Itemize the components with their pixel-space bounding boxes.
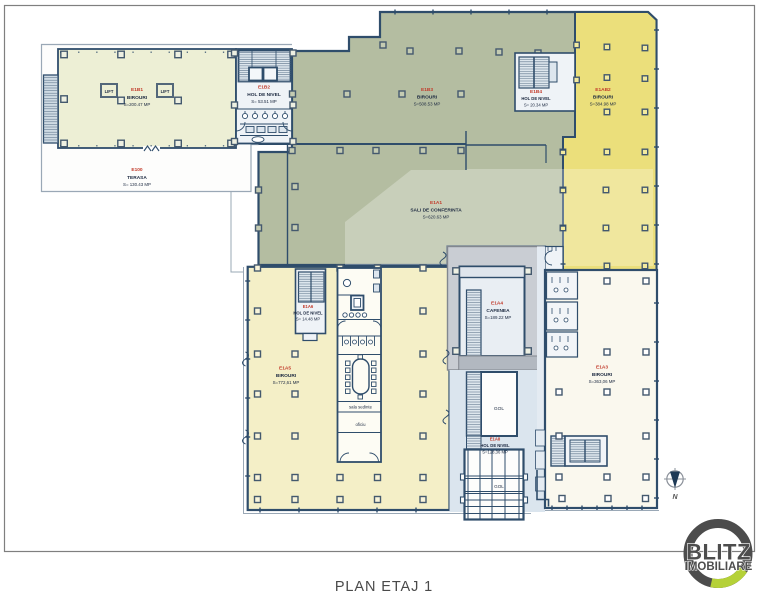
svg-text:GOL: GOL <box>494 484 504 489</box>
svg-text:S=772,61 MP: S=772,61 MP <box>273 380 300 385</box>
svg-text:SALI DE CONFERINTA: SALI DE CONFERINTA <box>410 208 462 214</box>
svg-text:E1A8: E1A8 <box>490 437 501 442</box>
svg-text:GOL: GOL <box>494 406 504 412</box>
svg-text:E1A1: E1A1 <box>430 200 442 206</box>
svg-text:PLAN ETAJ 1: PLAN ETAJ 1 <box>335 579 433 595</box>
svg-text:TERASA: TERASA <box>127 175 147 181</box>
svg-text:S=189.22 MP: S=189.22 MP <box>485 315 512 320</box>
svg-text:S=508.53 MP: S=508.53 MP <box>414 102 441 107</box>
svg-text:S= 53.51 MP: S= 53.51 MP <box>251 99 277 104</box>
svg-text:E1A4: E1A4 <box>491 301 503 307</box>
svg-text:S= 20.34 MP: S= 20.34 MP <box>524 103 549 108</box>
svg-text:HOL DE NIVEL: HOL DE NIVEL <box>521 96 551 101</box>
svg-text:LIFT: LIFT <box>105 89 114 94</box>
svg-text:E1B4: E1B4 <box>530 89 542 95</box>
svg-text:LIFT: LIFT <box>161 89 170 94</box>
svg-text:CAFENEA: CAFENEA <box>486 308 510 314</box>
svg-text:HOL DE NIVEL: HOL DE NIVEL <box>293 311 323 316</box>
svg-text:S=384.98 MP: S=384.98 MP <box>590 102 617 107</box>
svg-text:oficiu: oficiu <box>355 422 366 427</box>
svg-text:S=200.47 MP: S=200.47 MP <box>124 102 151 107</box>
svg-text:BIROURI: BIROURI <box>593 95 614 101</box>
svg-text:E100: E100 <box>131 167 143 173</box>
svg-text:E1A6: E1A6 <box>303 304 314 309</box>
svg-text:E1B2: E1B2 <box>258 85 270 91</box>
svg-text:E1AB2: E1AB2 <box>595 87 611 93</box>
svg-text:E1B3: E1B3 <box>421 87 433 93</box>
svg-text:BIROURI: BIROURI <box>417 95 438 101</box>
svg-text:S= 130.43 MP: S= 130.43 MP <box>123 182 151 187</box>
svg-text:HOL DE NIVEL: HOL DE NIVEL <box>247 92 281 98</box>
svg-text:E1A5: E1A5 <box>279 366 291 372</box>
svg-text:BIROURI: BIROURI <box>276 373 297 379</box>
svg-text:S=128,36 MP: S=128,36 MP <box>482 450 508 455</box>
svg-text:E1A3: E1A3 <box>596 365 608 371</box>
svg-text:IMOBILIARE: IMOBILIARE <box>685 561 753 573</box>
svg-text:HOL DE NIVEL: HOL DE NIVEL <box>480 443 510 448</box>
svg-text:E1B1: E1B1 <box>131 87 143 93</box>
svg-text:BIROURI: BIROURI <box>127 95 148 101</box>
svg-text:S= 14.48 MP: S= 14.48 MP <box>296 317 321 322</box>
svg-text:S=620.63 MP: S=620.63 MP <box>423 215 450 220</box>
svg-text:sala sedinte: sala sedinte <box>349 405 373 410</box>
svg-text:BIROURI: BIROURI <box>592 372 613 378</box>
svg-text:S=363,06 MP: S=363,06 MP <box>589 379 616 384</box>
